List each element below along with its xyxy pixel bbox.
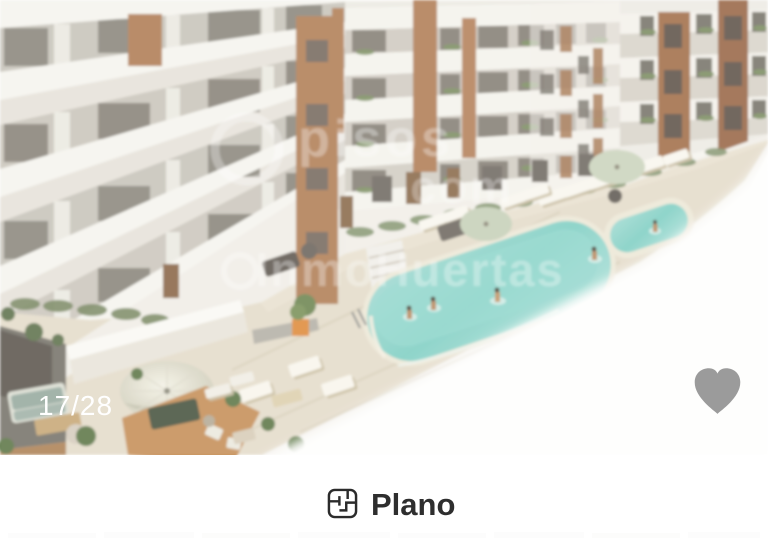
svg-text:pisos: pisos (298, 110, 454, 168)
svg-text:com: com (410, 161, 514, 213)
svg-text:InmoHuertas: InmoHuertas (255, 243, 564, 296)
